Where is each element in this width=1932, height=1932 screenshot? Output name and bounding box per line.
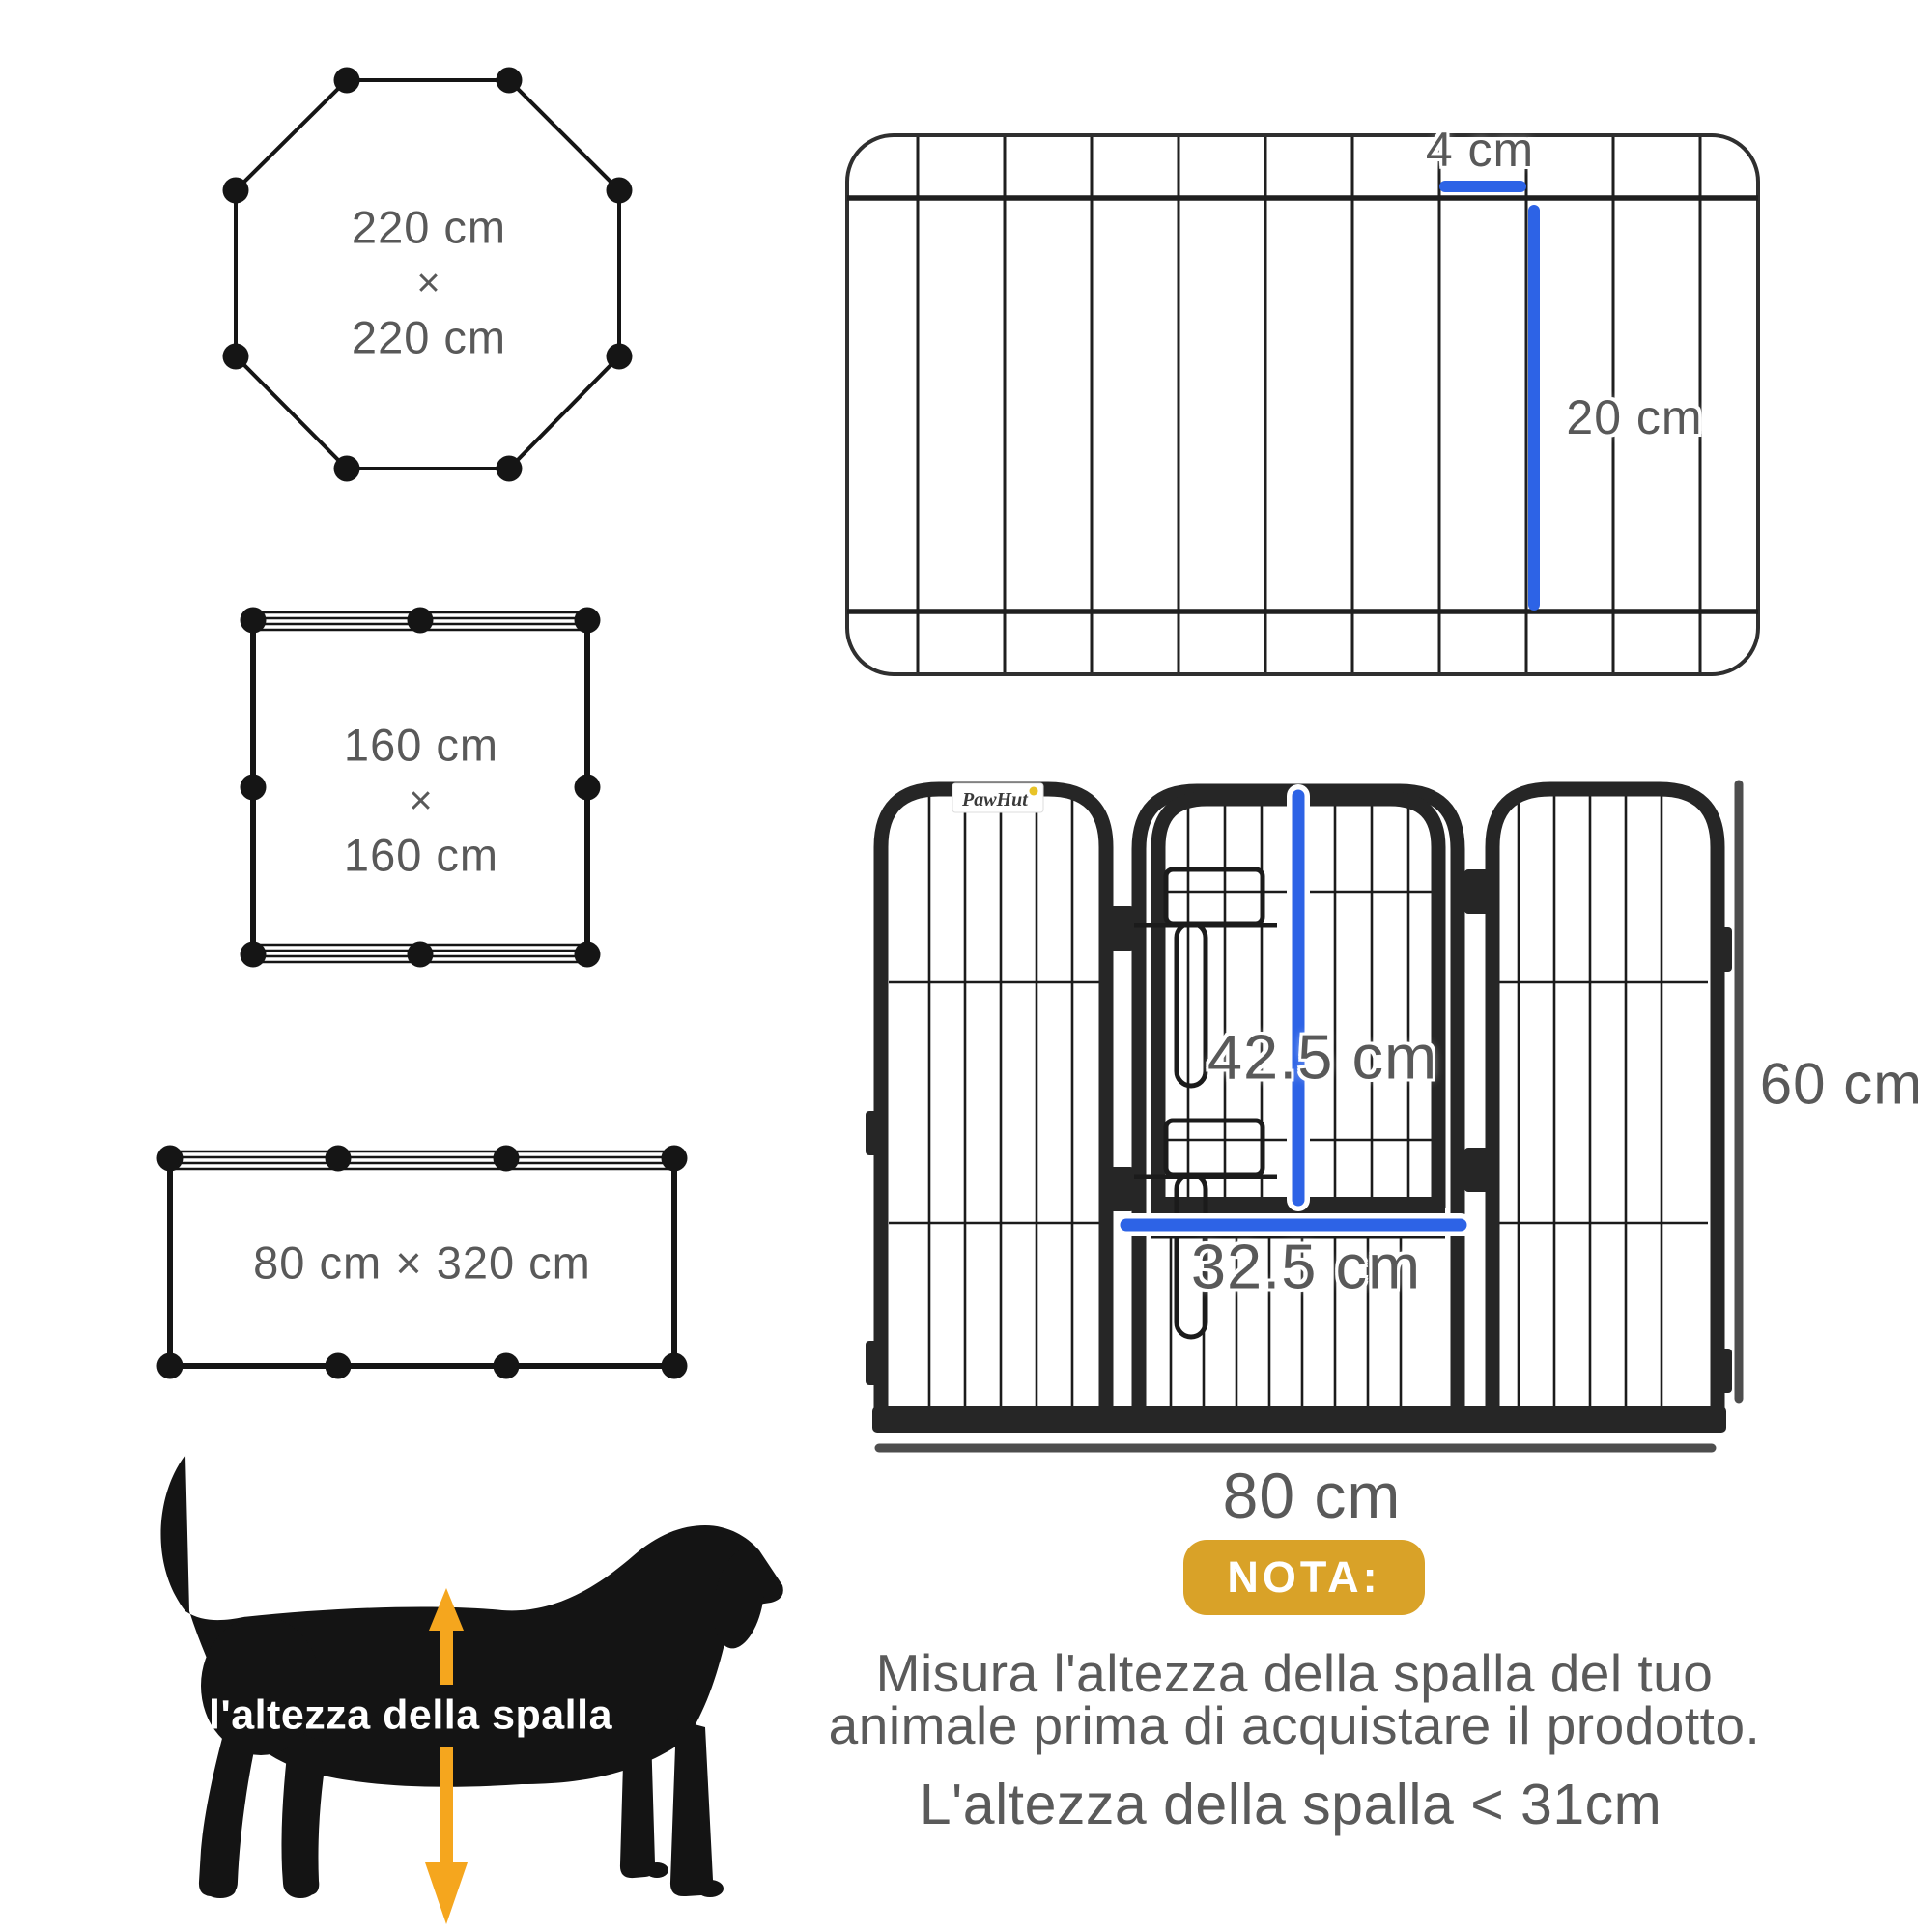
dog-silhouette-figure: [97, 1430, 850, 1932]
octagon-width: 220 cm: [352, 200, 506, 255]
door-width-label: 32.5 cm: [1191, 1231, 1421, 1303]
grid-measure-lines: [1445, 186, 1534, 605]
square-times: ×: [409, 773, 434, 828]
bar-gap-label: 4 cm: [1426, 122, 1534, 178]
square-height: 160 cm: [344, 828, 498, 883]
product-infographic: 220 cm × 220 cm 160 cm ×: [0, 0, 1932, 1932]
square-dimensions: 160 cm × 160 cm: [344, 718, 498, 883]
octagon-height: 220 cm: [352, 310, 506, 365]
rectangle-dimensions: 80 cm × 320 cm: [253, 1236, 591, 1290]
door-height-label: 42.5 cm: [1207, 1021, 1437, 1094]
note-badge: NOTA:: [1183, 1540, 1425, 1615]
panel-width-label: 80 cm: [1223, 1459, 1402, 1532]
dog-silhouette: [160, 1455, 782, 1898]
bar-length-label: 20 cm: [1566, 389, 1702, 445]
panel-height-label: 60 cm: [1760, 1051, 1922, 1118]
note-badge-text: NOTA:: [1227, 1552, 1380, 1603]
note-line-3: L'altezza della spalla < 31cm: [920, 1772, 1662, 1837]
fence-base-bar: [872, 1406, 1726, 1433]
square-width: 160 cm: [344, 718, 498, 773]
left-panel-wires: [889, 796, 1099, 1410]
right-panel-wires: [1497, 796, 1708, 1410]
paw-icon: [1030, 787, 1038, 796]
pawhut-logo-text: PawHut: [961, 789, 1029, 810]
octagon-dimensions: 220 cm × 220 cm: [352, 200, 506, 365]
shoulder-height-label: l'altezza della spalla: [209, 1692, 612, 1740]
pawhut-logo: PawHut: [952, 783, 1043, 812]
right-panel-frame: [1492, 789, 1718, 1418]
note-line-2: animale prima di acquistare il prodotto.: [829, 1694, 1761, 1756]
panel-front-view-diagram: PawHut: [840, 763, 1932, 1536]
octagon-times: ×: [416, 255, 441, 310]
